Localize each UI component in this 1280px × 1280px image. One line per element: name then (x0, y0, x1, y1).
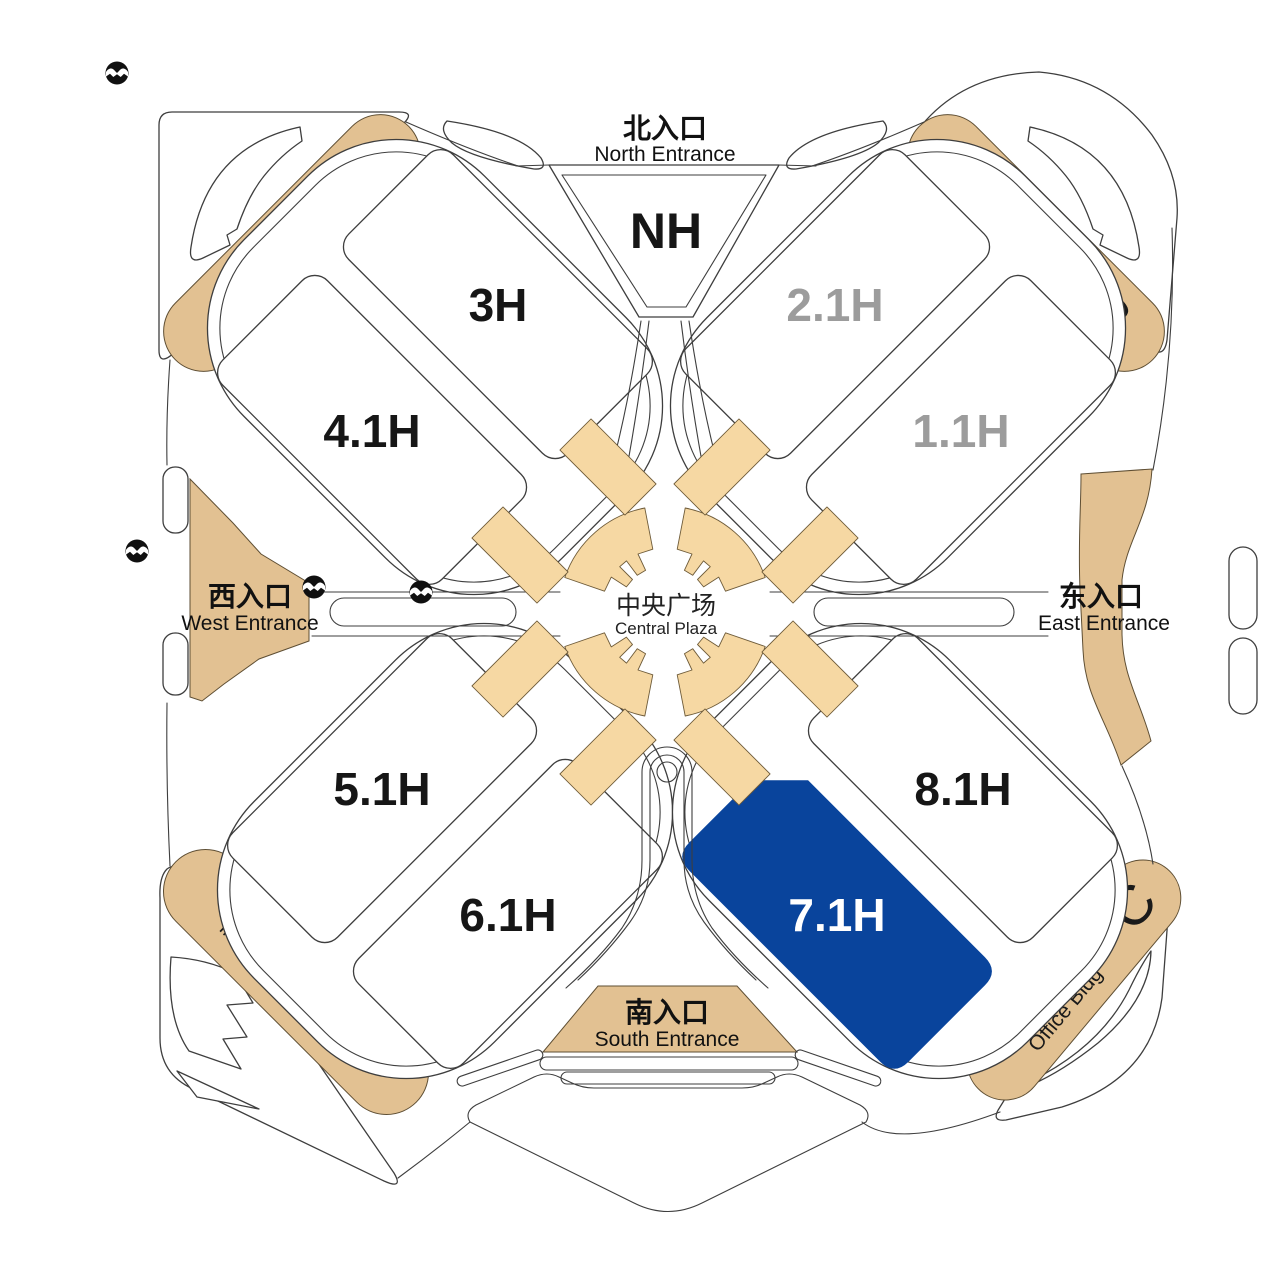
hall-4-1h-label[interactable]: 4.1H (323, 405, 420, 457)
central-plaza-label-en: Central Plaza (615, 619, 718, 638)
east-edge-shape-1 (1229, 547, 1257, 629)
boundary-segment (167, 360, 170, 465)
boundary-segment (862, 1112, 1000, 1134)
south-entrance-label-zh: 南入口 (625, 997, 709, 1028)
south-platform-bar-2 (561, 1072, 775, 1084)
east-entrance-label-en: East Entrance (1038, 612, 1170, 635)
metro-icon (410, 581, 433, 604)
central-plaza-label-zh: 中央广场 (616, 592, 716, 620)
east-corridor-capsule (814, 598, 1014, 626)
venue-map-page: 办公楼 Office Bldg A 办公楼 Office Bldg B 洲际酒店… (0, 0, 1280, 1280)
hall-1-1h-label[interactable]: 1.1H (912, 405, 1009, 457)
west-edge-shape-1 (163, 467, 188, 533)
hall-2-1h-label[interactable]: 2.1H (786, 279, 883, 331)
north-entrance-label-zh: 北入口 (623, 113, 707, 144)
east-corridor (770, 592, 1048, 636)
south-platform-bar-1 (540, 1057, 798, 1070)
hall-nh-label[interactable]: NH (630, 203, 702, 259)
metro-icon (106, 62, 129, 85)
north-entrance-label-en: North Entrance (594, 143, 735, 166)
east-entrance-label-zh: 东入口 (1059, 580, 1143, 612)
south-plate-shape (468, 1074, 868, 1212)
metro-icon (126, 540, 149, 563)
hall-7-1h-label[interactable]: 7.1H (788, 889, 885, 941)
boundary-segment (167, 703, 170, 866)
west-entrance-label-zh: 西入口 (208, 581, 292, 612)
west-edge-shape-2 (163, 633, 188, 695)
metro-icon (303, 576, 326, 599)
south-entrance-label-en: South Entrance (595, 1028, 740, 1051)
boundary-segment (398, 1122, 470, 1178)
hall-8-1h-label[interactable]: 8.1H (914, 763, 1011, 815)
hall-6-1h-label[interactable]: 6.1H (459, 889, 556, 941)
boundary-segment (1122, 766, 1153, 864)
venue-map: 办公楼 Office Bldg A 办公楼 Office Bldg B 洲际酒店… (0, 0, 1280, 1280)
hall-5-1h-label[interactable]: 5.1H (333, 763, 430, 815)
east-edge-shape-2 (1229, 638, 1257, 714)
west-entrance-label-en: West Entrance (181, 612, 318, 635)
hall-3h-label[interactable]: 3H (469, 279, 528, 331)
